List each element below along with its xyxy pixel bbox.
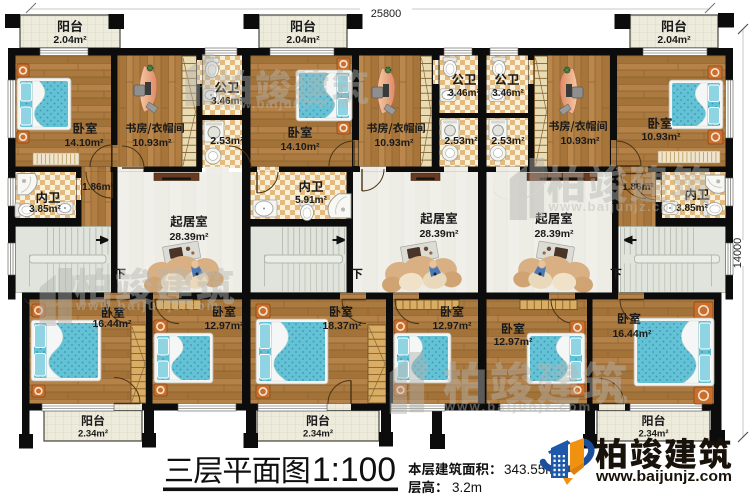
svg-text:3.85m²: 3.85m² bbox=[29, 204, 61, 215]
svg-text:12.97m²: 12.97m² bbox=[432, 320, 472, 332]
svg-text:10.93m²: 10.93m² bbox=[560, 135, 600, 147]
svg-text:www.baijunjz.com: www.baijunjz.com bbox=[444, 399, 592, 414]
svg-text:16.44m²: 16.44m² bbox=[92, 318, 132, 330]
svg-text:25800: 25800 bbox=[371, 8, 402, 20]
svg-text:2.34m²: 2.34m² bbox=[303, 429, 333, 440]
svg-text:14.10m²: 14.10m² bbox=[64, 137, 104, 149]
svg-text:www.baijunjz.com: www.baijunjz.com bbox=[547, 199, 683, 214]
svg-text:28.39m²: 28.39m² bbox=[534, 228, 574, 240]
svg-text:14.10m²: 14.10m² bbox=[280, 141, 320, 153]
svg-text:2.04m²: 2.04m² bbox=[53, 34, 87, 46]
svg-text:2.34m²: 2.34m² bbox=[638, 429, 668, 440]
svg-text:14000: 14000 bbox=[732, 238, 744, 269]
svg-text:2.04m²: 2.04m² bbox=[657, 34, 691, 46]
svg-text:2.53m²: 2.53m² bbox=[444, 135, 478, 147]
svg-text:2.53m²: 2.53m² bbox=[210, 135, 244, 147]
svg-text:16.44m²: 16.44m² bbox=[612, 328, 652, 340]
svg-text:28.39m²: 28.39m² bbox=[169, 231, 209, 243]
svg-text:3.46m²: 3.46m² bbox=[448, 88, 480, 99]
svg-text:3.2m: 3.2m bbox=[452, 480, 482, 495]
svg-text:10.93m²: 10.93m² bbox=[374, 137, 414, 149]
svg-text:28.39m²: 28.39m² bbox=[419, 228, 459, 240]
svg-text:www.baijunjz.com: www.baijunjz.com bbox=[75, 298, 220, 313]
svg-text:1:100: 1:100 bbox=[312, 451, 396, 489]
svg-text:18.37m²: 18.37m² bbox=[322, 320, 362, 332]
svg-text:2.04m²: 2.04m² bbox=[286, 34, 320, 46]
svg-text:www.baijunjz.com: www.baijunjz.com bbox=[217, 96, 349, 111]
svg-text:10.93m²: 10.93m² bbox=[641, 131, 681, 143]
svg-text:www.baijunjz.com: www.baijunjz.com bbox=[595, 468, 732, 485]
svg-text:2.34m²: 2.34m² bbox=[78, 429, 108, 440]
svg-text:1.86m²: 1.86m² bbox=[82, 182, 114, 193]
svg-text:5.91m²: 5.91m² bbox=[295, 195, 327, 206]
svg-text:2.53m²: 2.53m² bbox=[491, 135, 525, 147]
svg-text:12.97m²: 12.97m² bbox=[204, 320, 244, 332]
svg-text:3.46m²: 3.46m² bbox=[492, 88, 524, 99]
svg-text:12.97m²: 12.97m² bbox=[493, 336, 533, 348]
svg-text:10.93m²: 10.93m² bbox=[132, 137, 172, 149]
